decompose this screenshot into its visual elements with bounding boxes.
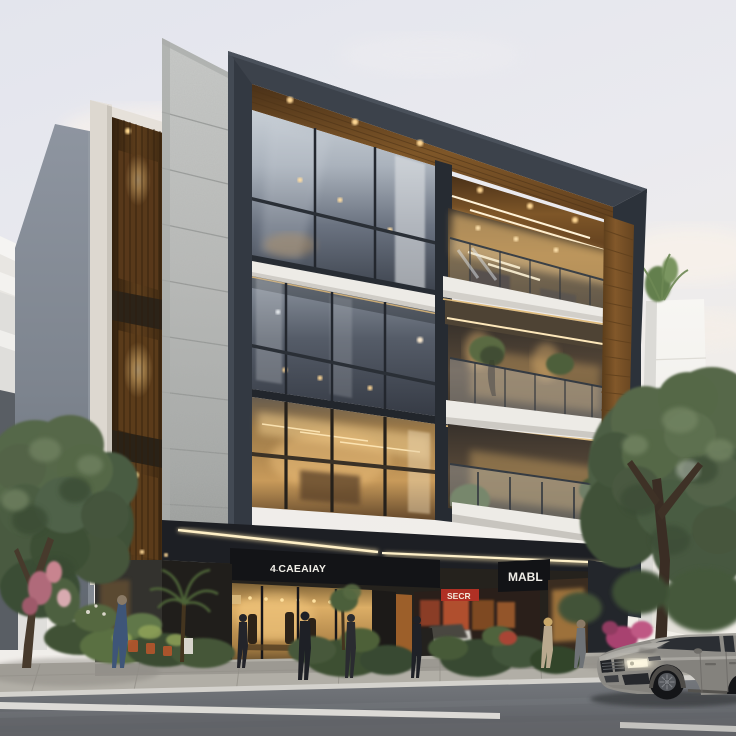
svg-text:4.CAEAIAY: 4.CAEAIAY: [270, 563, 326, 575]
svg-text:SECR: SECR: [447, 591, 471, 601]
svg-text:MABL: MABL: [508, 570, 543, 584]
